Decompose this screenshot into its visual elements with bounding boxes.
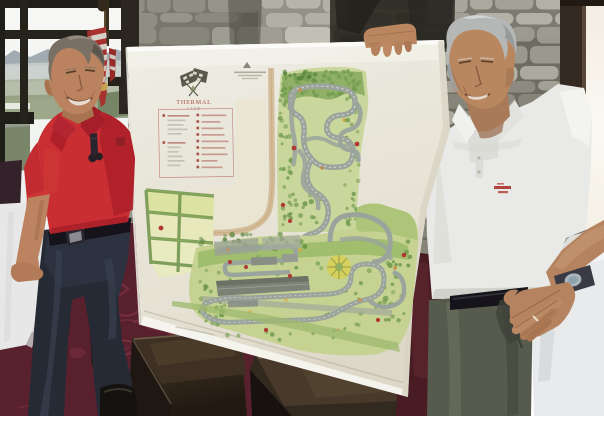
- svg-text:THERMAL: THERMAL: [176, 99, 212, 106]
